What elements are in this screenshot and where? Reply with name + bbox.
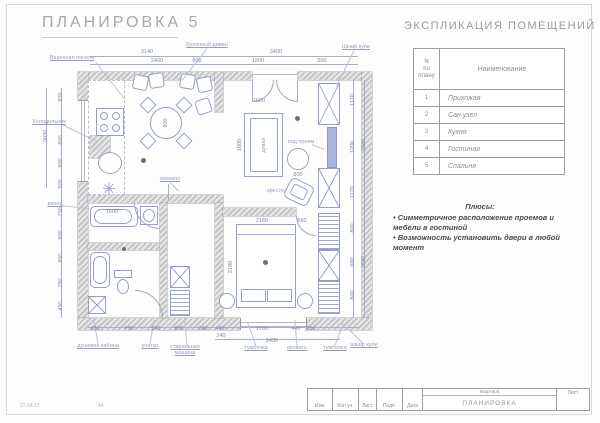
room-name: Сан узел [440, 112, 564, 119]
dimension-label: 450 [58, 301, 64, 310]
dimension-label: 500 [317, 58, 326, 64]
room-name: Прихожая [440, 95, 564, 102]
stamp-col-izm: Изм. [308, 389, 333, 410]
room-name: Гостиная [440, 146, 564, 153]
column-header-number: N по плану [414, 49, 440, 89]
notes-block: Плюсы: • Симметричное расположение проем… [393, 202, 567, 253]
note-item: • Возможность установить двери в любой м… [393, 233, 567, 253]
dimension-label: 750 [124, 326, 133, 332]
explication-table: N по плану Наименование 1 Прихожая 2 Сан… [413, 48, 565, 175]
table-header-row: N по плану Наименование [414, 49, 564, 89]
annotation-label: Кухонный диван [186, 42, 228, 48]
dimension-label: 3400 [270, 49, 282, 55]
dimension-label: 3030 [43, 130, 49, 142]
dimension-label: 440 [291, 326, 300, 332]
room-name: Кухня [440, 129, 564, 136]
annotation-label: шкаф купе [347, 342, 381, 348]
leader-line [62, 124, 98, 142]
room-number: 5 [414, 158, 440, 174]
drawing-sheet: ПЛАНИРОВКА 5 ЭКСПЛИКАЦИЯ ПОМЕЩЕНИЙ [0, 0, 600, 423]
stamp-sheet-cell: Лист [557, 389, 589, 410]
annotation-label: душевая кабина [77, 343, 119, 349]
table-row: 4 Гостиная [414, 140, 564, 157]
stamp-col-podp: Подп. [377, 389, 403, 410]
stamp-main-cell: Квартира ПЛАНИРОВКА [423, 389, 557, 410]
dimension-label: 800 [293, 172, 302, 178]
dimension-label: 830 [58, 92, 64, 101]
room-number: 4 [414, 141, 440, 157]
dimension-label: 2840 [361, 256, 367, 268]
annotation-label: Шкаф купе [339, 44, 373, 50]
leader-line [336, 50, 354, 86]
dimension-label: 1170 [350, 186, 356, 198]
footer-date: 27.04.17 [20, 403, 39, 409]
annotation-label: стиральная машина [160, 344, 210, 356]
dimension-label: 430 [90, 326, 99, 332]
annotation-label: тумбочка [244, 345, 268, 351]
stamp-col-list: Лист [359, 389, 377, 410]
leader-line [182, 48, 207, 80]
dimension-label: 200 [306, 326, 315, 332]
leader-line [348, 328, 363, 343]
column-header-name: Наименование [440, 66, 564, 73]
stamp-col-koluch: Кол.уч. [333, 389, 359, 410]
dimension-label: 3040 [361, 139, 367, 151]
annotation-label: Варочная панель [50, 55, 94, 61]
dimension-label: 3140 [141, 49, 153, 55]
dimension-label: 500 [58, 179, 64, 188]
annotation-label: ванна [47, 201, 62, 207]
dimension-label: 2400 [151, 58, 163, 64]
room-number: 1 [414, 90, 440, 106]
annotation-label: Холодильник [30, 119, 68, 125]
dimension-label: 800 [58, 253, 64, 262]
dimension-label: 2190 [228, 261, 234, 273]
dimension-label: 1170 [350, 94, 356, 106]
leader-line [170, 182, 179, 191]
table-row: 2 Сан узел [414, 106, 564, 123]
dimension-label: 750 [58, 278, 64, 287]
annotation-label: зеркало [160, 176, 181, 182]
table-row: 5 Спальня [414, 157, 564, 174]
dimension-label: 600 [350, 257, 356, 266]
dimension-label: 800 [58, 158, 64, 167]
dimension-label: 540 [151, 326, 160, 332]
leader-line [96, 62, 125, 99]
leader-line [335, 323, 344, 346]
dimension-label: 800 [350, 290, 356, 299]
dimension-label: 1200 [350, 141, 356, 153]
notes-list: • Симметричное расположение проемов и ме… [393, 213, 567, 253]
dimension-label: 560 [297, 218, 306, 224]
dimension-label: 800 [58, 135, 64, 144]
room-number: 2 [414, 107, 440, 123]
dimension-label: 800 [350, 223, 356, 232]
annotation-label: унитаз [142, 343, 159, 349]
stamp-col-data: Дата [403, 389, 423, 410]
annotation-label: кровать [287, 345, 307, 351]
dimension-label: 240 [198, 326, 207, 332]
room-name: Спальня [440, 163, 564, 170]
dimension-label: 800 [192, 58, 201, 64]
dimension-label: 800 [174, 326, 183, 332]
dimension-label: 440 [215, 326, 224, 332]
dimension-label: 1600 [253, 98, 265, 104]
table-row: 1 Прихожая [414, 89, 564, 106]
leader-line [60, 205, 90, 209]
annotation-label: кресло [267, 188, 285, 194]
title-block: Изм. Кол.уч. Лист Подп. Дата Квартира ПЛ… [307, 388, 590, 411]
stamp-document-title: ПЛАНИРОВКА [423, 396, 556, 410]
annotation-label: тумбочка [323, 345, 347, 351]
dimension-label: 800 [163, 118, 169, 127]
annotation-label: диван [261, 137, 267, 152]
dimension-label: 750 [58, 207, 64, 216]
leader-line [294, 320, 297, 346]
notes-heading: Плюсы: [393, 202, 567, 212]
leader-line [184, 317, 188, 347]
note-item: • Симметричное расположение проемов и ме… [393, 213, 567, 233]
dimension-label: 240 [216, 333, 225, 339]
stamp-project: Квартира [423, 389, 556, 396]
dimension-label: 1800 [237, 139, 243, 151]
room-number: 3 [414, 124, 440, 140]
dimension-label: 1200 [252, 58, 264, 64]
dimension-label: 1600 [106, 209, 118, 215]
dimension-label: 800 [58, 230, 64, 239]
footer-number: 44 [98, 403, 104, 409]
dimension-label: 1700 [256, 326, 268, 332]
annotation-label: под проем [288, 139, 315, 145]
dimension-label: 2160 [256, 218, 268, 224]
table-row: 3 Кухня [414, 123, 564, 140]
dimension-label: 2430 [266, 338, 278, 344]
